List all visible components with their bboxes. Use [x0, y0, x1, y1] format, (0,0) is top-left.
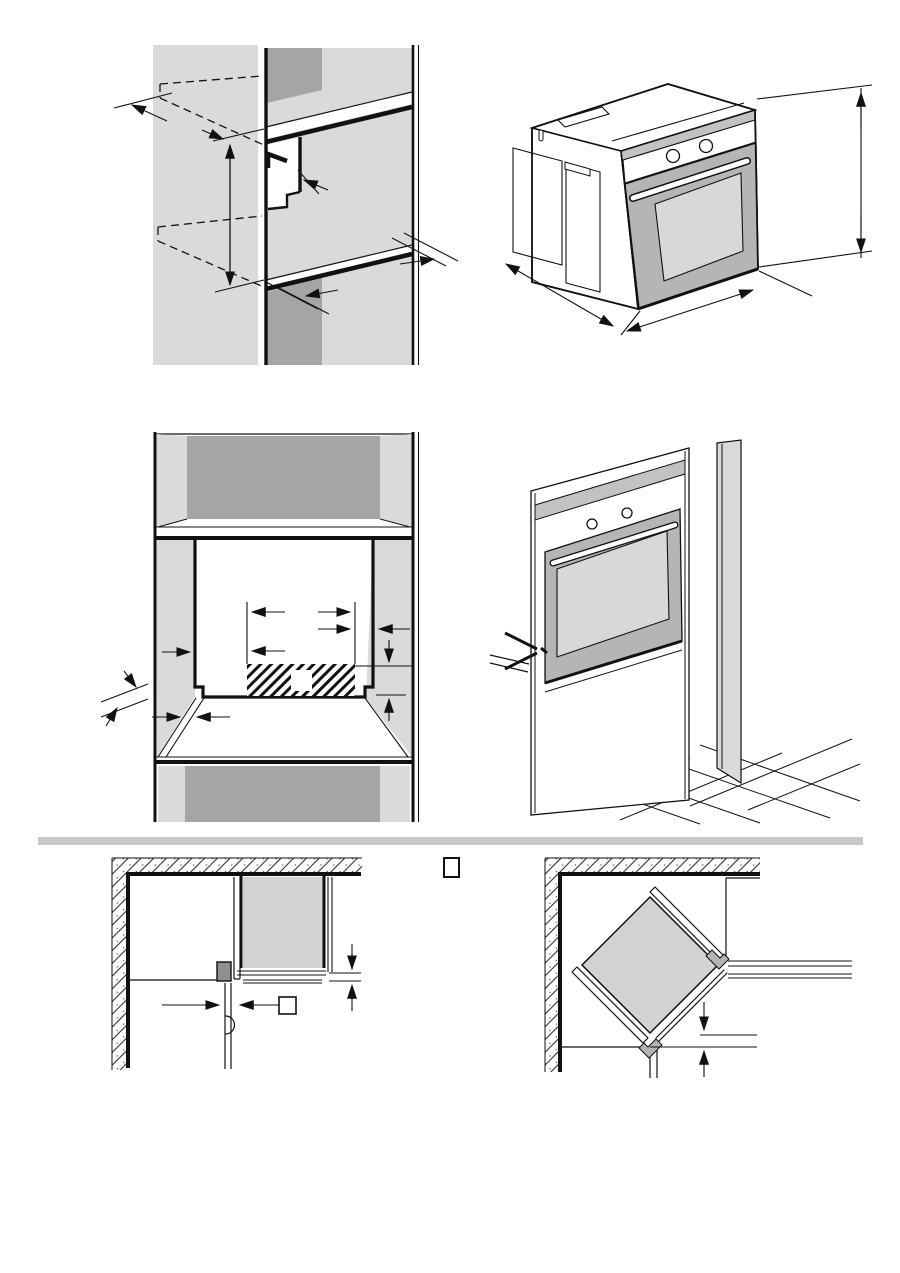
manual-page — [0, 0, 900, 1273]
oven-rotated-45deg — [572, 887, 729, 1058]
shelf-thickness-arrow-a — [124, 671, 136, 687]
cabinet-front — [531, 448, 689, 815]
oven-body-plan — [243, 877, 323, 968]
back-panel — [185, 766, 380, 822]
oven-body-plan — [582, 897, 718, 1033]
open-door — [225, 983, 235, 1069]
diagram-oven-installed-tall-cabinet — [485, 425, 863, 830]
dimension-label-box — [443, 857, 460, 878]
diagram-corner-installation-plan — [88, 852, 373, 1080]
back-panel — [187, 436, 380, 519]
hinge-block — [217, 962, 231, 981]
shelf-thickness-arrow-b — [106, 708, 117, 726]
side-emboss-panel-back — [513, 148, 562, 265]
wall-left — [545, 858, 560, 1072]
wall-top — [112, 858, 362, 874]
side-emboss-panel-front — [566, 163, 600, 292]
wall-top — [545, 858, 760, 874]
diagram-installation-niche-front — [95, 425, 425, 830]
diagram-oven-dimensions-isometric — [488, 70, 880, 340]
vent-slot-icon — [539, 130, 543, 141]
oven-top-view — [217, 875, 361, 983]
wall-left — [112, 858, 128, 1070]
niche-opening — [156, 540, 412, 757]
door-front-lines — [237, 971, 361, 983]
section-divider-bar — [38, 837, 863, 845]
diagram-niche-side-section — [95, 40, 460, 375]
dimension-label-box — [291, 670, 312, 691]
tall-cabinet-column — [717, 440, 741, 783]
control-knob-icon — [622, 508, 632, 518]
lower-compartment — [158, 766, 410, 822]
door-swing-arc — [226, 1016, 235, 1034]
control-knob-icon — [700, 140, 713, 153]
front-panel-band — [153, 45, 258, 365]
back-panel-bottom — [267, 277, 322, 365]
control-knob-icon — [587, 519, 597, 529]
diagram-diagonal-corner-installation-plan — [535, 852, 860, 1080]
dimension-label-box — [279, 997, 296, 1014]
upper-compartment — [156, 434, 412, 538]
control-knob-icon — [667, 150, 680, 163]
adjacent-cabinet-right — [726, 878, 852, 978]
oven-body — [513, 84, 758, 309]
